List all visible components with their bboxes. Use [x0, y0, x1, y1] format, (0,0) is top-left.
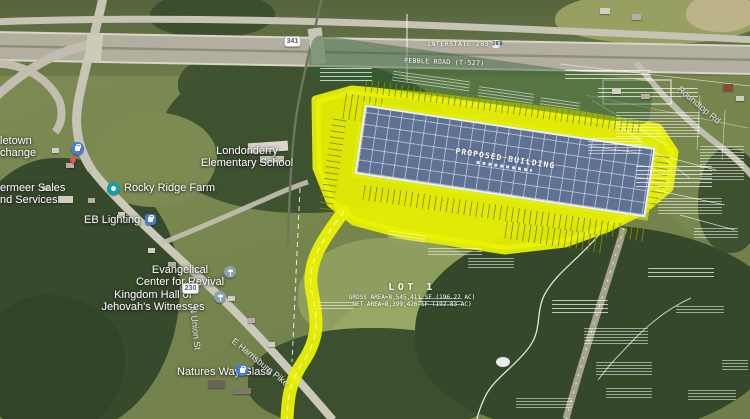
satellite-map-canvas[interactable]: PROPOSED BUILDING INTERSTATE 283 [0, 0, 750, 419]
shopping-icon[interactable] [71, 142, 84, 155]
farm-building [632, 14, 641, 20]
plan-annotation-scribble [565, 70, 651, 79]
building-roof [248, 318, 255, 323]
bag-glyph [75, 146, 80, 151]
lot1-gross-area: GROSS AREA=8,545,411 SF (196.27 AC) [322, 294, 502, 301]
plan-annotation-scribble [588, 138, 642, 154]
place-label-evangelical-center[interactable]: Evangelical Center for Revival [136, 265, 224, 289]
route-shield-230[interactable]: 230 [182, 283, 199, 294]
church-icon[interactable] [224, 266, 236, 278]
place-label-londonderry-elementary[interactable]: Londonderry Elementary School [201, 146, 293, 170]
lighting-store-icon[interactable] [145, 214, 156, 225]
vine-st-bridge [85, 33, 104, 63]
bag-glyph [240, 368, 245, 373]
ramp-loop [0, 64, 62, 132]
farm-building [736, 96, 744, 101]
plan-annotation-scribble [596, 362, 652, 376]
farm-poi-icon[interactable] [107, 182, 120, 195]
plan-annotation-scribble [658, 198, 722, 214]
plan-annotation-scribble [606, 388, 652, 398]
cross-glyph [227, 269, 234, 276]
plan-annotation-scribble [428, 248, 482, 256]
plan-annotation-scribble [616, 112, 700, 138]
place-label-middletown-exchange[interactable]: letown change [0, 136, 36, 160]
plan-annotation-scribble [552, 300, 608, 314]
place-label-eb-lighting[interactable]: EB Lighting [84, 215, 140, 227]
plan-annotation-scribble [468, 258, 514, 268]
farm-building [600, 8, 610, 14]
farm-building [641, 94, 650, 99]
plan-annotation-scribble [722, 360, 748, 370]
place-label-rocky-ridge-farm[interactable]: Rocky Ridge Farm [124, 183, 215, 195]
lot1-title: LOT 1 [322, 282, 502, 293]
building-roof [88, 198, 95, 203]
natures-way-building [208, 380, 225, 388]
red-roof-house [723, 84, 733, 91]
plan-annotation-scribble [584, 328, 648, 346]
cross-glyph [217, 294, 224, 301]
building-roof [52, 148, 59, 153]
natures-way-building2 [233, 388, 251, 394]
plan-annotation-scribble [688, 390, 736, 402]
pond-symbol [496, 357, 510, 367]
route-shield-341[interactable]: 341 [284, 36, 301, 47]
interstate-shield-icon: 283 [492, 40, 500, 48]
plan-annotation-scribble [516, 398, 572, 408]
lot1-net-area: NET AREA=8,399,426 SF (192.83 AC) [322, 301, 502, 308]
parcel-dashed-west [292, 188, 300, 362]
plan-annotation-scribble [700, 146, 744, 180]
poi-dot [111, 186, 116, 191]
glass-store-icon[interactable] [236, 364, 248, 376]
plan-annotation-scribble [648, 268, 714, 280]
building-roof [268, 342, 275, 347]
interstate-overlay-label: INTERSTATE 283283 [427, 40, 500, 48]
place-label-vermeer[interactable]: ermeer Sales nd Services [0, 183, 65, 207]
plan-annotation-scribble [694, 228, 738, 238]
place-label-natures-way-glass[interactable]: Natures Way Glass [177, 367, 271, 379]
building-roof [148, 248, 155, 253]
farm-building [612, 88, 621, 94]
church-icon[interactable] [214, 291, 226, 303]
lot1-text-block: LOT 1 GROSS AREA=8,545,411 SF (196.27 AC… [322, 282, 502, 308]
building-roof [228, 296, 235, 301]
bag-glyph [148, 217, 153, 222]
plan-annotation-scribble [676, 306, 724, 315]
plan-annotation-scribble [320, 68, 372, 84]
